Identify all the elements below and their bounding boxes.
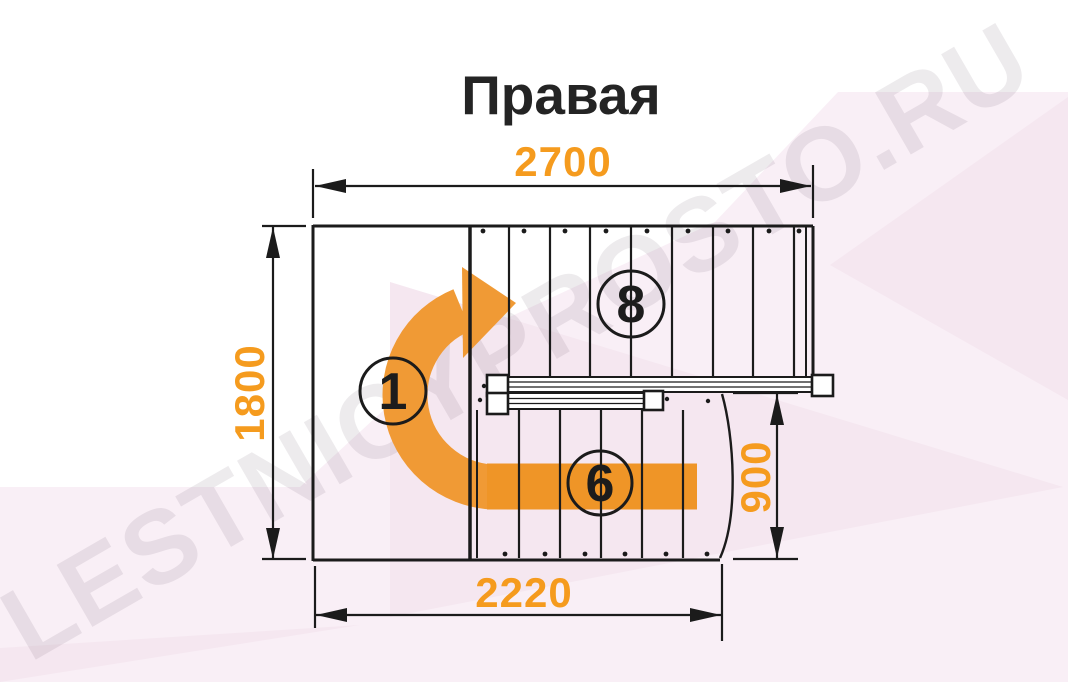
step-label-landing: 1 <box>379 363 408 421</box>
diagram-canvas: LESTNICYPROSTO.RU <box>0 0 1068 682</box>
page-title: Правая <box>461 64 660 126</box>
stair-plan-diagram: LESTNICYPROSTO.RU <box>0 0 1068 682</box>
step-label-lower: 6 <box>586 455 615 513</box>
arrowhead <box>266 227 280 258</box>
rail-post-cap <box>487 393 508 414</box>
dim-label-bottom: 2220 <box>475 569 572 616</box>
rail-post-cap <box>644 391 663 410</box>
dim-label-right: 900 <box>732 440 779 513</box>
dim-label-top: 2700 <box>514 138 611 185</box>
rail-post-cap <box>812 375 833 396</box>
step-label-upper: 8 <box>617 276 646 334</box>
dim-label-left: 1800 <box>226 344 273 441</box>
arrowhead <box>315 179 346 193</box>
